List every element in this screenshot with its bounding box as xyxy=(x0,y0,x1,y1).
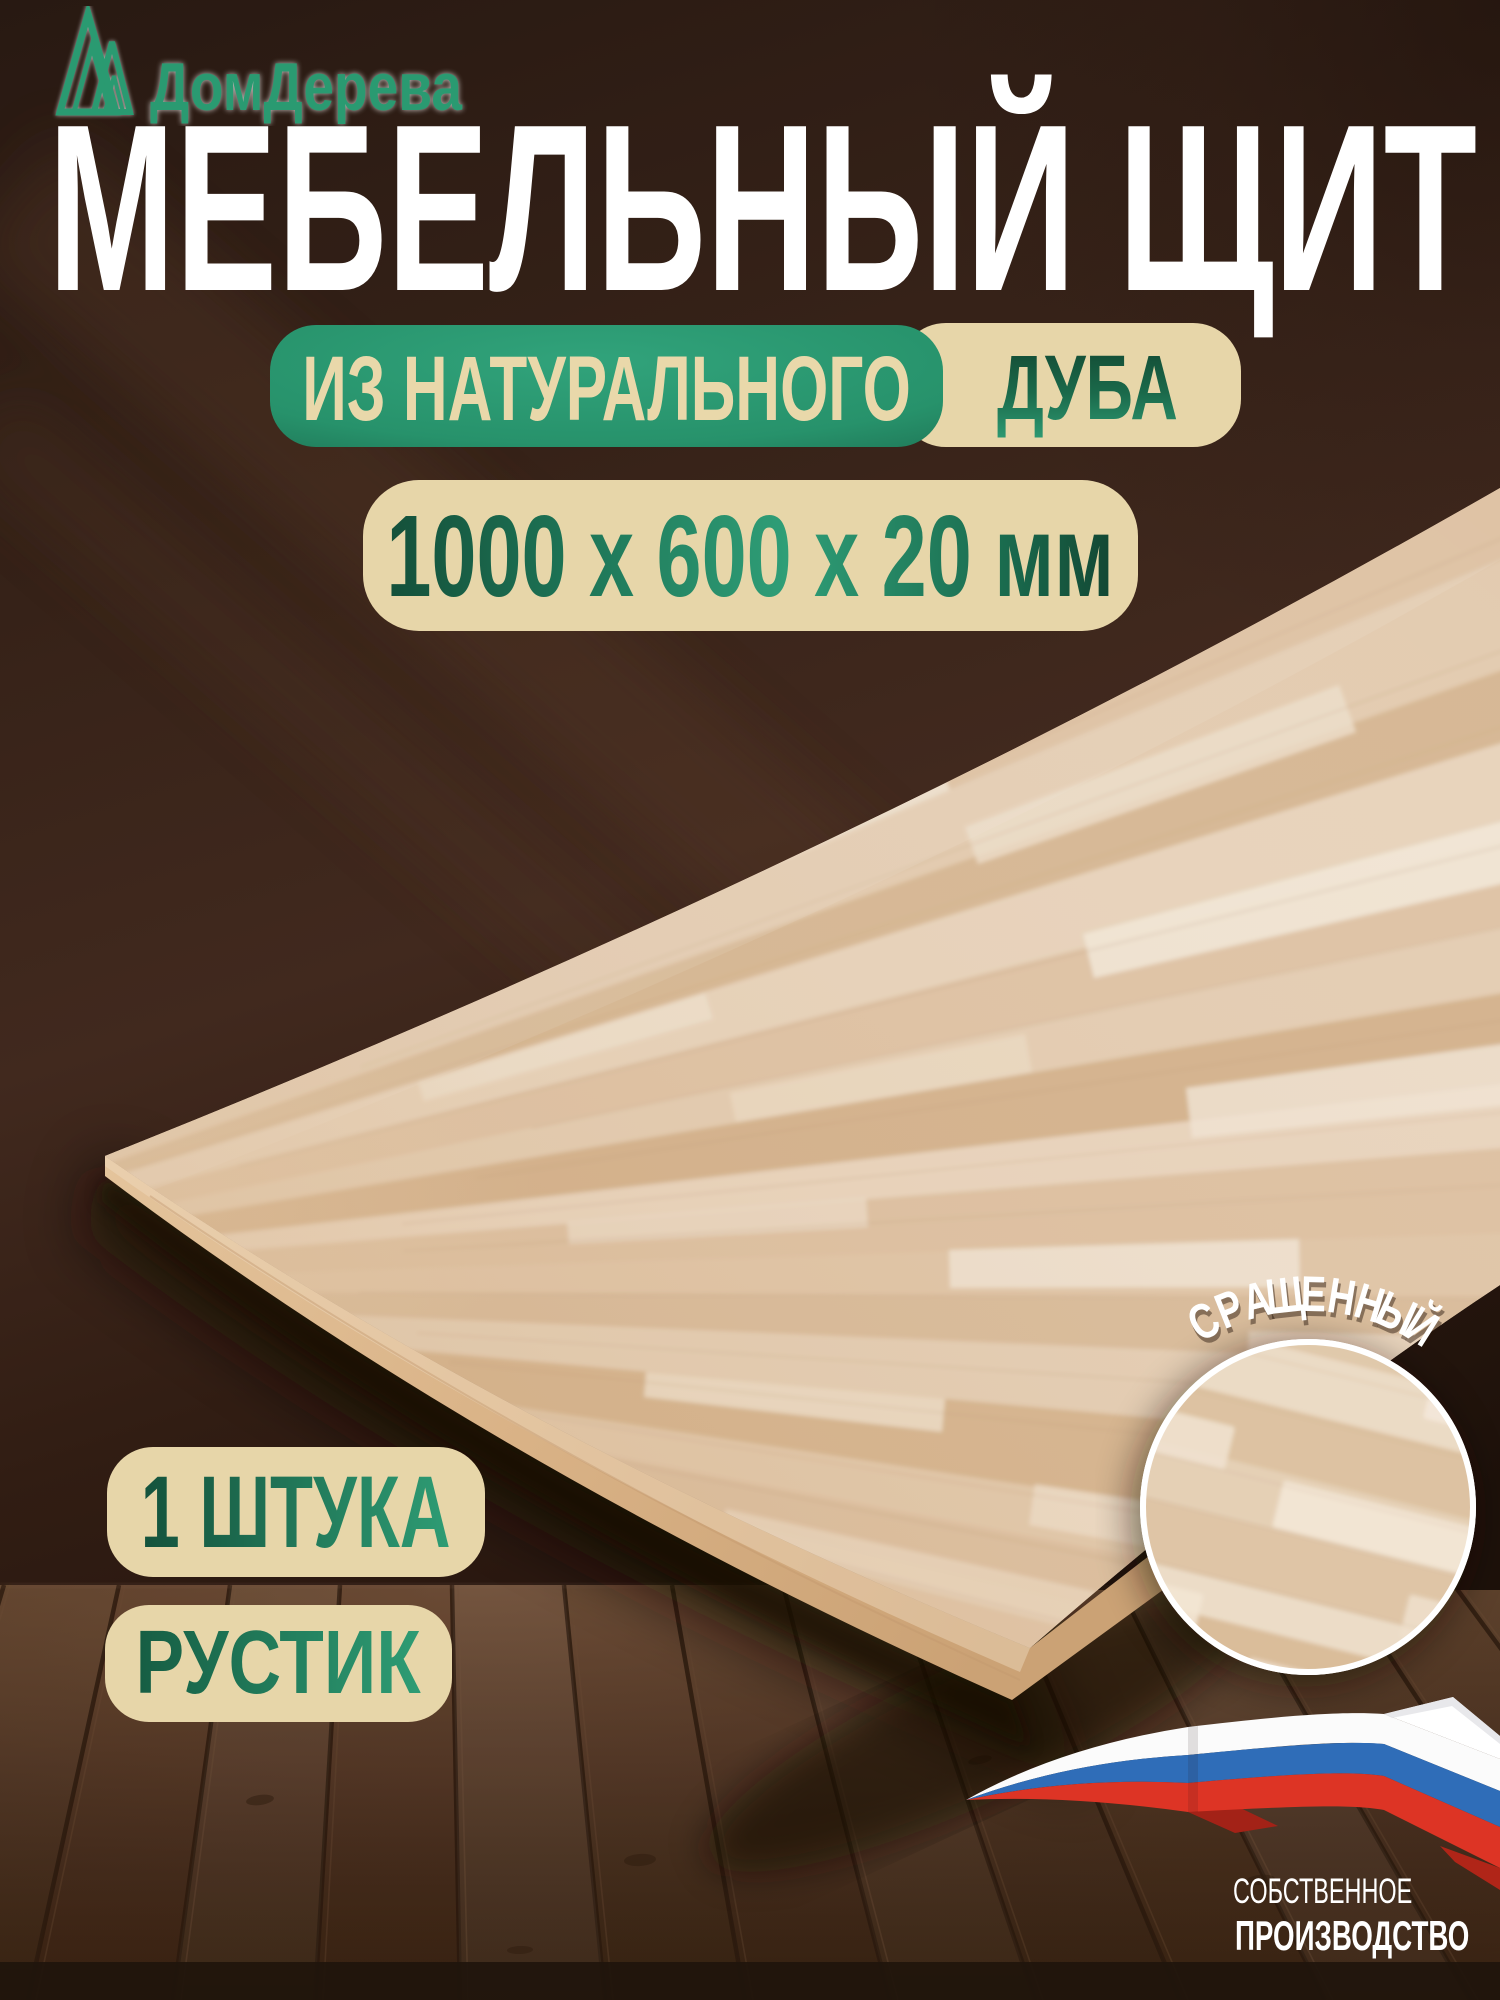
svg-text:Е: Е xyxy=(1300,1267,1326,1323)
